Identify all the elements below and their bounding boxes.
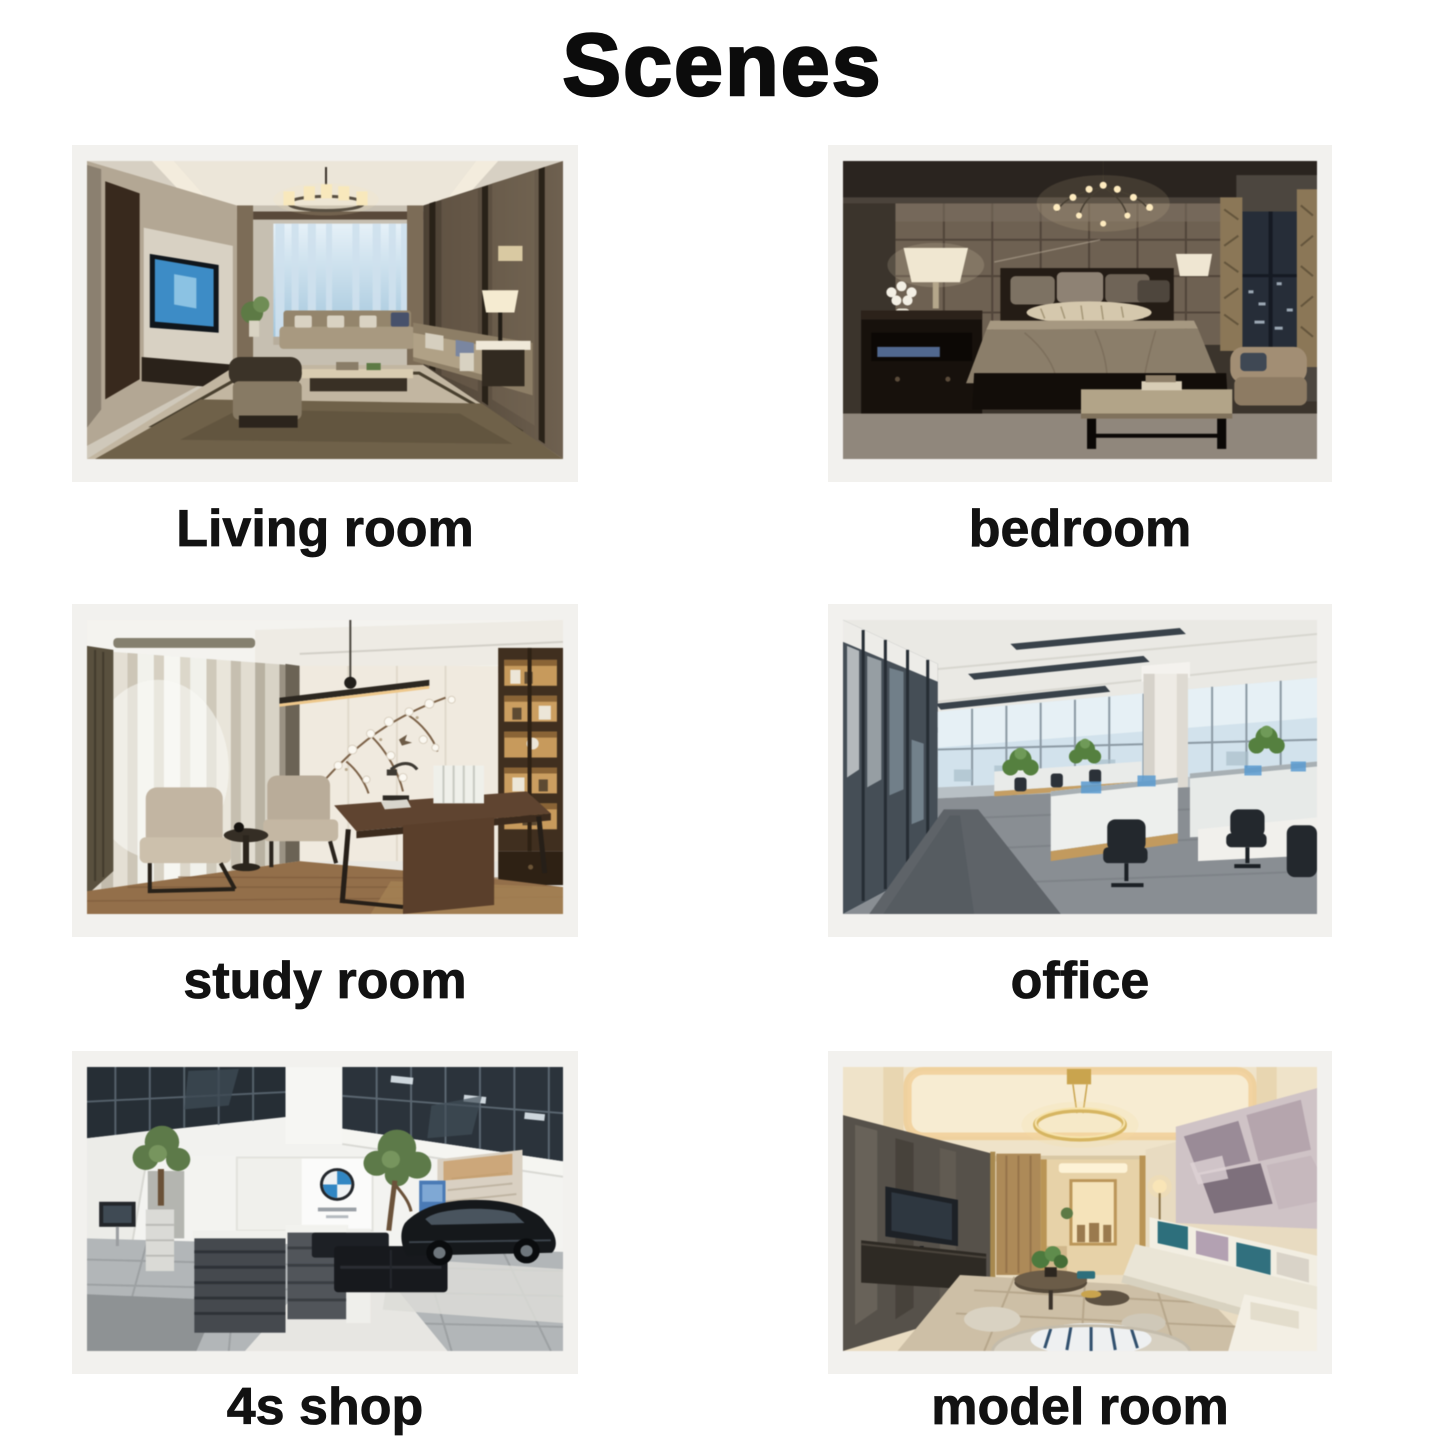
white-books xyxy=(433,766,484,804)
scene-label-living-room: Living room xyxy=(72,500,578,560)
model-room-photo xyxy=(843,1067,1317,1351)
office-illustration xyxy=(843,620,1317,914)
pouf xyxy=(964,1307,1020,1332)
scene-card-4s-shop xyxy=(72,1051,578,1374)
pillar xyxy=(286,1067,343,1144)
scene-label-office: office xyxy=(828,952,1332,1012)
carpet xyxy=(843,414,1317,459)
scene-label-4s-shop: 4s shop xyxy=(72,1378,578,1438)
ac-grille xyxy=(113,638,255,648)
model-room-illustration xyxy=(843,1067,1317,1351)
bmw-sign xyxy=(237,1157,373,1230)
scene-card-living-room xyxy=(72,145,578,482)
nightstand xyxy=(861,311,982,414)
living-room-illustration xyxy=(87,161,563,459)
door xyxy=(105,181,139,399)
office-photo xyxy=(843,620,1317,914)
scene-card-study-room xyxy=(72,604,578,937)
side-curtain xyxy=(87,646,113,895)
living-room-photo xyxy=(87,161,563,459)
bmw-logo-icon xyxy=(320,1168,354,1201)
bookshelf xyxy=(498,648,563,885)
scene-card-model-room xyxy=(828,1051,1332,1374)
second-lamp xyxy=(1176,254,1212,276)
coffee-table xyxy=(302,369,413,378)
bedroom-illustration xyxy=(843,161,1317,459)
armchair xyxy=(229,357,302,428)
scene-label-model-room: model room xyxy=(828,1378,1332,1438)
4s-shop-photo xyxy=(87,1067,563,1351)
study-room-photo xyxy=(87,620,563,914)
armchair xyxy=(1230,347,1307,406)
scene-label-bedroom: bedroom xyxy=(828,500,1332,560)
scene-label-study-room: study room xyxy=(72,952,578,1012)
bedroom-photo xyxy=(843,161,1317,459)
page-title: Scenes xyxy=(0,14,1445,116)
scene-card-bedroom xyxy=(828,145,1332,482)
study-room-illustration xyxy=(87,620,563,914)
4s-shop-illustration xyxy=(87,1067,563,1351)
scenes-page: Scenes xyxy=(0,0,1445,1445)
scene-card-office xyxy=(828,604,1332,937)
